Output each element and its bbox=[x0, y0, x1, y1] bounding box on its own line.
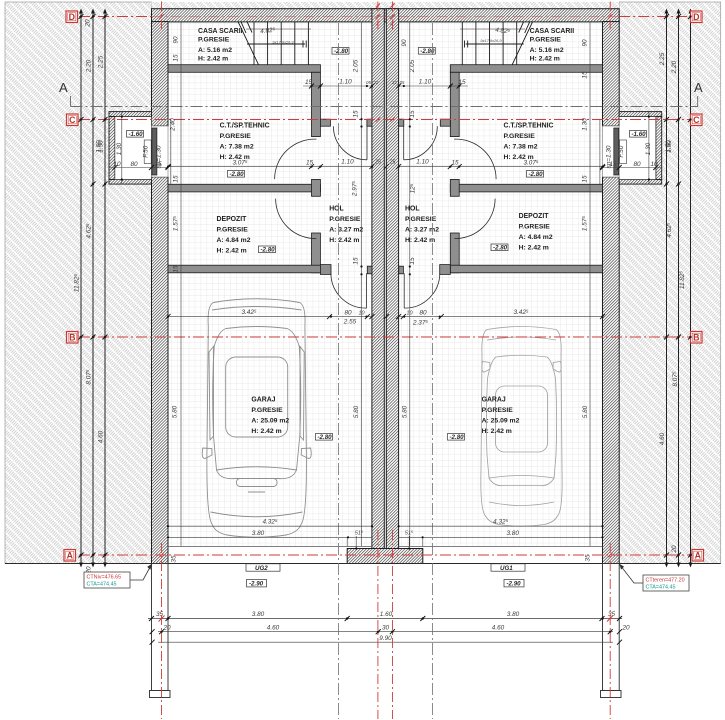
svg-text:P.GRESIE: P.GRESIE bbox=[220, 133, 252, 140]
svg-text:B: B bbox=[69, 333, 75, 343]
svg-text:3.07⁵: 3.07⁵ bbox=[523, 160, 538, 167]
svg-text:11.82⁵: 11.82⁵ bbox=[679, 271, 686, 290]
svg-text:80: 80 bbox=[344, 310, 352, 317]
svg-text:4.60: 4.60 bbox=[492, 625, 505, 632]
svg-text:2.05: 2.05 bbox=[353, 59, 360, 73]
svg-text:P.GRESIE: P.GRESIE bbox=[504, 133, 536, 140]
svg-text:1.30: 1.30 bbox=[582, 118, 589, 131]
svg-text:2.25: 2.25 bbox=[659, 52, 666, 66]
svg-text:22: 22 bbox=[391, 80, 397, 85]
svg-text:2.97⁵: 2.97⁵ bbox=[352, 181, 359, 197]
svg-text:5.80: 5.80 bbox=[402, 405, 409, 418]
svg-text:15: 15 bbox=[582, 175, 589, 183]
svg-text:-2.80: -2.80 bbox=[450, 434, 465, 441]
svg-text:UG2: UG2 bbox=[255, 565, 268, 572]
svg-text:3.80: 3.80 bbox=[252, 611, 265, 618]
svg-text:3.07⁵: 3.07⁵ bbox=[232, 160, 247, 167]
svg-text:2.05: 2.05 bbox=[409, 59, 416, 73]
svg-text:-2.80: -2.80 bbox=[318, 434, 333, 441]
svg-text:A: 7.38 m2: A: 7.38 m2 bbox=[220, 144, 254, 151]
svg-text:1.57⁵: 1.57⁵ bbox=[173, 216, 180, 231]
svg-text:05: 05 bbox=[366, 80, 371, 85]
svg-text:1.10: 1.10 bbox=[419, 79, 432, 86]
svg-text:CTA=474.45: CTA=474.45 bbox=[646, 585, 676, 591]
svg-text:80: 80 bbox=[130, 161, 138, 168]
svg-text:C: C bbox=[69, 115, 76, 125]
svg-text:D: D bbox=[693, 12, 699, 22]
svg-text:11.82⁵: 11.82⁵ bbox=[74, 274, 81, 293]
svg-text:A: 25.09 m2: A: 25.09 m2 bbox=[482, 418, 520, 425]
svg-text:A: 5.16 m2: A: 5.16 m2 bbox=[530, 47, 564, 54]
svg-text:9x17,9x26,9: 9x17,9x26,9 bbox=[272, 40, 294, 45]
svg-text:2.20: 2.20 bbox=[86, 59, 93, 73]
svg-text:DEPOZIT: DEPOZIT bbox=[217, 216, 248, 223]
svg-text:2.20: 2.20 bbox=[671, 60, 678, 74]
svg-text:C.T./SP.TEHNIC: C.T./SP.TEHNIC bbox=[504, 123, 554, 130]
svg-text:P.GRESIE: P.GRESIE bbox=[329, 216, 361, 223]
svg-text:80: 80 bbox=[419, 310, 427, 317]
svg-text:1.10: 1.10 bbox=[341, 159, 354, 166]
svg-text:F.50: F.50 bbox=[618, 145, 625, 157]
svg-text:A: A bbox=[695, 551, 702, 561]
svg-text:C.T./SP.TEHNIC: C.T./SP.TEHNIC bbox=[220, 123, 270, 130]
svg-text:51⁵: 51⁵ bbox=[405, 531, 414, 537]
svg-text:DEPOZIT: DEPOZIT bbox=[519, 213, 550, 220]
svg-text:H: 2.42 m: H: 2.42 m bbox=[482, 428, 512, 435]
svg-text:20: 20 bbox=[671, 545, 678, 554]
svg-text:-2.90: -2.90 bbox=[507, 581, 522, 588]
svg-text:3.80: 3.80 bbox=[507, 611, 520, 618]
svg-text:15: 15 bbox=[451, 160, 459, 167]
svg-text:1.10: 1.10 bbox=[416, 159, 429, 166]
svg-text:15: 15 bbox=[173, 265, 180, 273]
svg-text:sp=1.30: sp=1.30 bbox=[155, 145, 162, 168]
svg-text:CTA=474.45: CTA=474.45 bbox=[87, 582, 117, 588]
svg-text:1.30: 1.30 bbox=[645, 142, 652, 155]
svg-text:A: 3.27 m2: A: 3.27 m2 bbox=[329, 227, 363, 234]
svg-text:35: 35 bbox=[171, 555, 178, 563]
svg-text:A: 4.84 m2: A: 4.84 m2 bbox=[519, 234, 553, 241]
svg-text:A: 5.16 m2: A: 5.16 m2 bbox=[198, 47, 232, 54]
svg-text:GARAJ: GARAJ bbox=[251, 397, 275, 404]
svg-text:-2.80: -2.80 bbox=[230, 171, 245, 178]
svg-text:-2.80: -2.80 bbox=[334, 48, 349, 55]
svg-text:H: 2.42 m: H: 2.42 m bbox=[217, 248, 247, 255]
svg-text:8.07⁵: 8.07⁵ bbox=[86, 369, 93, 384]
svg-text:H: 2.42 m: H: 2.42 m bbox=[329, 237, 359, 244]
svg-text:A: 7.38 m2: A: 7.38 m2 bbox=[504, 144, 538, 151]
svg-text:3.42⁵: 3.42⁵ bbox=[241, 309, 256, 316]
svg-text:12⁵: 12⁵ bbox=[410, 183, 417, 193]
svg-text:A: 4.84 m2: A: 4.84 m2 bbox=[217, 237, 251, 244]
svg-text:4.60: 4.60 bbox=[659, 432, 666, 445]
svg-text:GARAJ: GARAJ bbox=[482, 397, 506, 404]
svg-text:P.GRESIE: P.GRESIE bbox=[251, 407, 283, 414]
svg-text:15: 15 bbox=[173, 54, 180, 62]
svg-text:5.80: 5.80 bbox=[582, 405, 589, 418]
svg-text:3.80: 3.80 bbox=[252, 530, 265, 537]
svg-text:1.50: 1.50 bbox=[665, 140, 672, 153]
svg-text:15: 15 bbox=[173, 175, 180, 183]
svg-text:9x17,9x26,9: 9x17,9x26,9 bbox=[480, 38, 502, 43]
svg-text:4.60: 4.60 bbox=[98, 430, 105, 443]
svg-text:2.55: 2.55 bbox=[343, 319, 357, 326]
svg-text:A: 25.09 m2: A: 25.09 m2 bbox=[251, 418, 289, 425]
svg-text:HOL: HOL bbox=[405, 206, 420, 213]
svg-text:D: D bbox=[69, 12, 75, 22]
svg-text:15: 15 bbox=[409, 257, 416, 265]
svg-text:22: 22 bbox=[373, 80, 379, 85]
svg-text:-2.80: -2.80 bbox=[261, 247, 276, 254]
svg-text:H: 2.42 m: H: 2.42 m bbox=[198, 56, 228, 63]
svg-text:15: 15 bbox=[409, 110, 416, 118]
svg-text:P.GRESIE: P.GRESIE bbox=[530, 37, 562, 44]
svg-text:90: 90 bbox=[401, 39, 408, 47]
svg-text:CASA SCARII: CASA SCARII bbox=[198, 28, 243, 35]
svg-text:CTNiv=476.65: CTNiv=476.65 bbox=[87, 575, 122, 581]
svg-text:1.10: 1.10 bbox=[339, 79, 352, 86]
svg-text:P.GRESIE: P.GRESIE bbox=[482, 407, 514, 414]
svg-text:-2.80: -2.80 bbox=[529, 171, 544, 178]
svg-text:H: 2.42 m: H: 2.42 m bbox=[519, 245, 549, 252]
svg-text:H: 2.42 m: H: 2.42 m bbox=[530, 56, 560, 63]
svg-text:51⁵: 51⁵ bbox=[355, 531, 364, 537]
svg-text:20: 20 bbox=[621, 625, 630, 632]
svg-text:25: 25 bbox=[389, 160, 396, 166]
svg-text:3.80: 3.80 bbox=[506, 530, 519, 537]
svg-text:4.32⁵: 4.32⁵ bbox=[262, 519, 277, 526]
svg-text:4.32⁵: 4.32⁵ bbox=[493, 519, 508, 526]
svg-text:-2.80: -2.80 bbox=[493, 245, 508, 252]
svg-text:-1.60: -1.60 bbox=[129, 131, 144, 138]
svg-text:A: A bbox=[59, 80, 68, 95]
svg-text:B: B bbox=[693, 333, 699, 343]
svg-text:P.GRESIE: P.GRESIE bbox=[198, 37, 230, 44]
svg-text:15: 15 bbox=[353, 110, 360, 118]
svg-text:1.57⁵: 1.57⁵ bbox=[582, 216, 589, 231]
svg-text:1.60: 1.60 bbox=[380, 611, 393, 618]
svg-text:8.07⁵: 8.07⁵ bbox=[672, 371, 679, 386]
svg-text:P.GRESIE: P.GRESIE bbox=[217, 227, 249, 234]
svg-text:2.37⁵: 2.37⁵ bbox=[412, 320, 428, 327]
svg-text:CASA SCARII: CASA SCARII bbox=[530, 28, 575, 35]
svg-text:A: A bbox=[694, 80, 703, 95]
svg-text:80: 80 bbox=[633, 161, 641, 168]
svg-text:A: A bbox=[67, 551, 74, 561]
svg-text:1.30: 1.30 bbox=[116, 142, 123, 155]
svg-text:4.62⁵: 4.62⁵ bbox=[86, 223, 93, 238]
svg-text:90: 90 bbox=[173, 36, 180, 44]
svg-text:UG1: UG1 bbox=[500, 565, 513, 572]
svg-text:CTteren=477.20: CTteren=477.20 bbox=[646, 578, 685, 584]
svg-text:4.60: 4.60 bbox=[267, 625, 280, 632]
svg-text:15: 15 bbox=[306, 160, 314, 167]
svg-text:2.25: 2.25 bbox=[98, 55, 105, 69]
svg-text:90: 90 bbox=[582, 39, 589, 47]
svg-text:15: 15 bbox=[582, 71, 589, 79]
svg-text:15: 15 bbox=[458, 79, 466, 86]
svg-text:F.50: F.50 bbox=[143, 145, 150, 157]
svg-text:-2.90: -2.90 bbox=[249, 581, 264, 588]
svg-text:25: 25 bbox=[374, 160, 381, 166]
svg-text:1.50: 1.50 bbox=[96, 140, 103, 153]
svg-text:10: 10 bbox=[113, 161, 121, 168]
svg-text:sp=1.30: sp=1.30 bbox=[606, 145, 613, 168]
svg-text:05: 05 bbox=[400, 80, 405, 85]
svg-text:H: 2.42 m: H: 2.42 m bbox=[251, 428, 281, 435]
svg-text:15: 15 bbox=[353, 257, 360, 265]
svg-text:35: 35 bbox=[585, 554, 592, 562]
svg-text:30: 30 bbox=[382, 625, 390, 632]
svg-text:5.80: 5.80 bbox=[172, 405, 179, 418]
svg-text:3.42⁵: 3.42⁵ bbox=[513, 309, 528, 316]
svg-text:20: 20 bbox=[85, 19, 92, 28]
svg-text:A: 3.27 m2: A: 3.27 m2 bbox=[405, 227, 439, 234]
svg-text:4.62⁵: 4.62⁵ bbox=[666, 222, 673, 237]
svg-text:P.GRESIE: P.GRESIE bbox=[519, 224, 551, 231]
svg-text:C: C bbox=[693, 115, 700, 125]
svg-text:5.80: 5.80 bbox=[353, 405, 360, 418]
svg-text:HOL: HOL bbox=[329, 206, 344, 213]
svg-text:10: 10 bbox=[650, 161, 658, 168]
svg-text:9.90: 9.90 bbox=[379, 635, 392, 642]
svg-text:20: 20 bbox=[162, 625, 171, 632]
svg-text:-1.60: -1.60 bbox=[632, 131, 647, 138]
